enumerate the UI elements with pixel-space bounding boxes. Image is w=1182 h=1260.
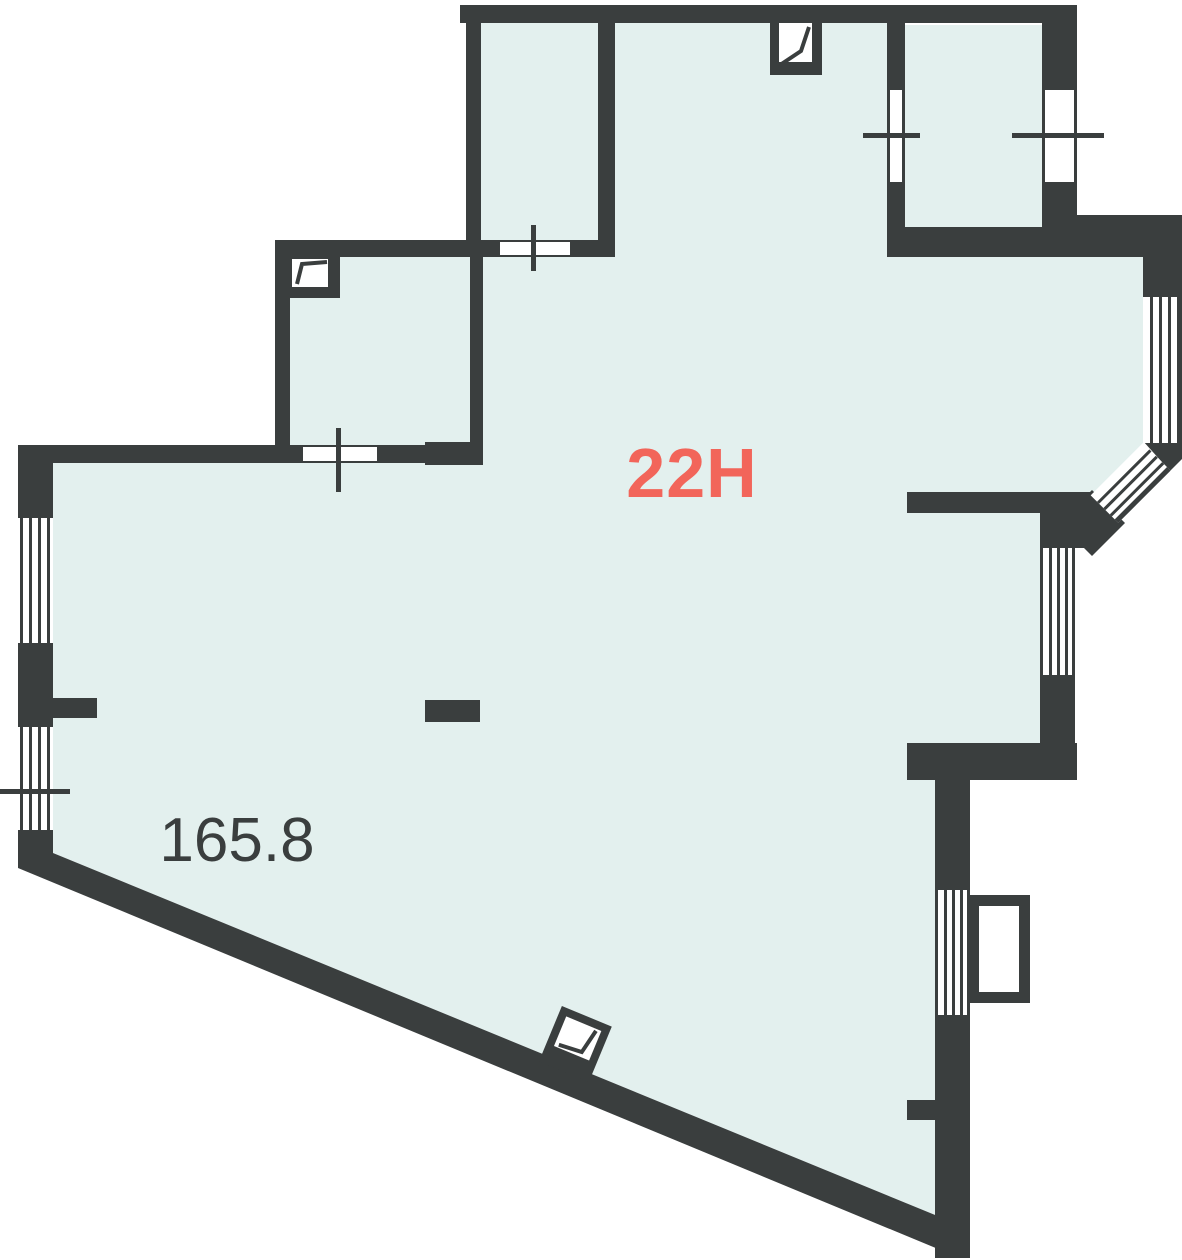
cross-left-lower-window bbox=[0, 789, 70, 794]
window-lower-right bbox=[938, 890, 967, 1015]
wall-lower-right-horizontal bbox=[907, 743, 1077, 780]
wall-stub-left bbox=[53, 698, 97, 718]
floor-plan: 22H 165.8 bbox=[0, 0, 1182, 1260]
wall-junction-block bbox=[425, 442, 483, 465]
cross-tr-left-window bbox=[863, 133, 920, 138]
cross-small-room-window bbox=[336, 428, 341, 492]
wall-top bbox=[460, 5, 1077, 23]
wall-top-room-left bbox=[466, 5, 481, 257]
window-left-lower bbox=[18, 727, 53, 830]
wall-small-room-right bbox=[470, 240, 483, 465]
balcony-box-outside bbox=[968, 895, 1030, 1003]
wall-band-top-right-ext bbox=[1077, 215, 1182, 257]
wall-bay-upper bbox=[1143, 257, 1182, 299]
wall-small-room-top bbox=[275, 240, 483, 257]
wall-hall-top-left bbox=[18, 445, 290, 463]
wall-stub-lower-right bbox=[907, 1100, 935, 1120]
wall-top-room-right bbox=[598, 5, 615, 257]
wall-right-below-window bbox=[1040, 675, 1075, 743]
window-right-middle bbox=[1043, 548, 1072, 675]
wall-bay-bottom-horizontal bbox=[907, 492, 1092, 513]
wall-stub-middle bbox=[425, 700, 480, 722]
vent-flap-icon-top-wall bbox=[770, 23, 822, 75]
vent-flap-icon-small-room bbox=[285, 257, 340, 298]
window-bay-vertical bbox=[1143, 297, 1182, 443]
unit-label: 22H bbox=[626, 434, 757, 512]
wall-band-below-tr-room bbox=[887, 227, 1077, 257]
window-left-upper bbox=[18, 518, 53, 643]
floor-plan-canvas: 22H 165.8 bbox=[0, 0, 1182, 1260]
cross-top-room-window bbox=[531, 225, 536, 271]
cross-tr-right-window bbox=[1012, 133, 1104, 138]
room-top-loggia-floor bbox=[481, 23, 598, 240]
wall-lower-right-vertical bbox=[935, 780, 970, 1258]
area-label: 165.8 bbox=[159, 806, 314, 875]
room-top-right-loggia-floor bbox=[905, 25, 1042, 227]
